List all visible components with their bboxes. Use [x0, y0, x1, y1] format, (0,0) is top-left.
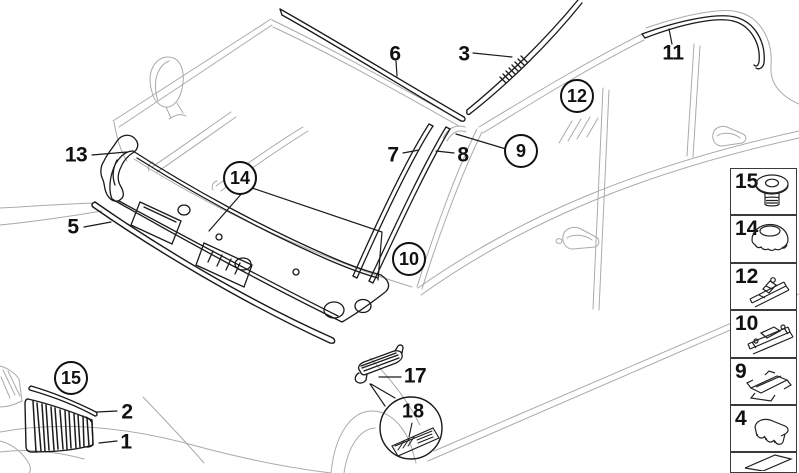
rail-clip-icon: [743, 316, 795, 356]
callout-3[interactable]: 3: [458, 44, 469, 65]
callout-13[interactable]: 13: [65, 145, 87, 166]
callout-8[interactable]: 8: [457, 145, 468, 166]
sidebar-box-10[interactable]: 10: [730, 310, 797, 358]
callout-circle-12[interactable]: 12: [560, 79, 594, 113]
sidebar-box-12[interactable]: 12: [730, 263, 797, 310]
callout-6[interactable]: 6: [389, 44, 400, 65]
sidebar-box-14[interactable]: 14: [730, 215, 797, 263]
clamp-bracket-icon: [741, 363, 795, 403]
grommet-fastener-icon: [745, 171, 795, 213]
sidebar-box-4[interactable]: 4: [730, 405, 797, 452]
windshield-upper-molding-part6: [280, 9, 465, 121]
sidebar-box-extra[interactable]: [730, 452, 797, 473]
sidebar-box-9[interactable]: 9: [730, 358, 797, 405]
callout-7[interactable]: 7: [387, 145, 398, 166]
cap-fastener-icon: [743, 219, 795, 261]
callout-5[interactable]: 5: [67, 217, 78, 238]
callout-1[interactable]: 1: [120, 432, 131, 453]
fastener-sidebar: 15 14 12 10: [730, 168, 797, 473]
car-body-outline: [0, 11, 799, 473]
callout-circle-15[interactable]: 15: [54, 361, 88, 395]
callout-circle-10[interactable]: 10: [392, 242, 426, 276]
callout-18[interactable]: 18: [402, 401, 424, 424]
diagram-line-art: [0, 0, 799, 473]
callout-17[interactable]: 17: [404, 366, 426, 387]
sidebar-box-15[interactable]: 15: [730, 168, 797, 215]
parts-diagram: 13 5 6 3 11 7 8 17 2 1 9 10 12 14 15 18 …: [0, 0, 799, 473]
trim-plate-icon: [739, 452, 795, 471]
molding-clip-icon: [743, 268, 795, 308]
callout-2[interactable]: 2: [121, 402, 132, 423]
retainer-clip-icon: [743, 410, 795, 450]
callout-circle-14[interactable]: 14: [223, 161, 257, 195]
callout-circle-9[interactable]: 9: [504, 134, 538, 168]
callout-11[interactable]: 11: [662, 43, 683, 64]
kidney-grille-part1: [25, 399, 93, 452]
